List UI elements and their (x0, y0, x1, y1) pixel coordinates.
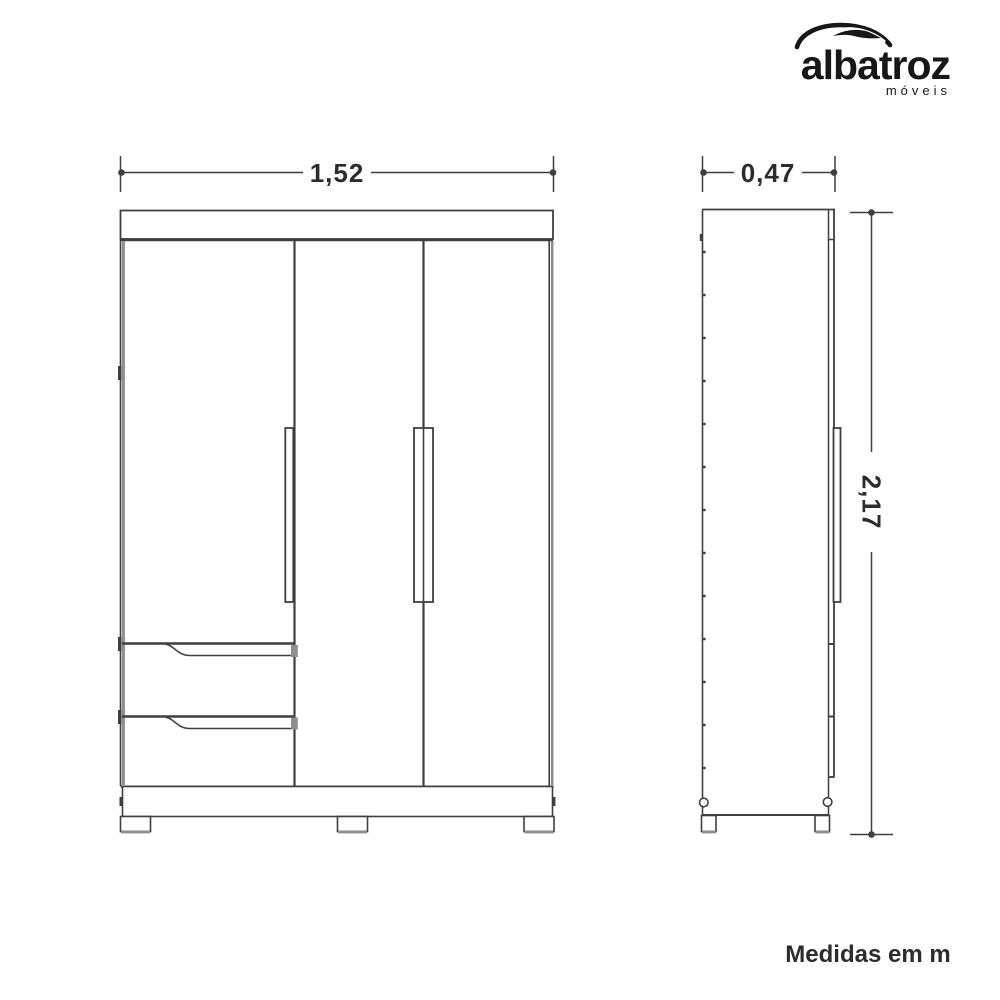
front-view (118, 211, 555, 833)
side-depth-dimension: 0,47 (700, 156, 837, 192)
side-glide-front (823, 798, 832, 807)
door-handle-left (285, 428, 293, 602)
technical-drawing-page: albatroz móveis 1,52 (0, 0, 1000, 1000)
depth-dimension-label: 0,47 (741, 158, 796, 188)
height-dimension-label: 2,17 (857, 475, 887, 530)
side-back-notch (700, 234, 703, 241)
front-hinge-mark-2 (118, 637, 122, 651)
width-dimension-label: 1,52 (310, 158, 365, 188)
depth-dim-dot-right (831, 169, 838, 176)
front-foot-right (524, 817, 554, 832)
front-hinge-mark-3 (118, 710, 122, 724)
width-dim-dot-left (118, 169, 125, 176)
base-mark-left (120, 797, 123, 806)
front-foot-left (121, 817, 151, 832)
side-back-fastener-dots (703, 251, 706, 770)
base-mark-right (553, 797, 556, 806)
drawer-2-recess-handle (166, 718, 294, 729)
height-dim-dot-bottom (868, 831, 875, 838)
front-base-plinth (123, 787, 553, 817)
drawer-2-side-block (291, 718, 298, 730)
front-top-panel (121, 211, 554, 240)
depth-dim-dot-left (700, 169, 707, 176)
side-foot-front (815, 816, 830, 832)
width-dim-dot-right (550, 169, 557, 176)
front-width-dimension: 1,52 (118, 156, 556, 192)
drawer-1-recess-handle (166, 645, 294, 656)
side-height-dimension: 2,17 (850, 209, 893, 838)
side-door-handle (834, 428, 841, 602)
logo-brand-text: albatroz (801, 42, 951, 88)
side-view (700, 210, 841, 833)
side-foot-back (702, 816, 717, 832)
units-note: Medidas em m (785, 941, 950, 968)
height-dim-dot-top (868, 209, 875, 216)
drawer-1-side-block (291, 645, 298, 657)
front-foot-middle (338, 817, 368, 832)
front-hinge-mark-1 (118, 366, 122, 380)
wardrobe-technical-drawing: albatroz móveis 1,52 (0, 0, 1000, 1000)
side-glide-back (700, 798, 709, 807)
logo: albatroz móveis (797, 25, 951, 98)
logo-subtitle-text: móveis (886, 83, 951, 98)
